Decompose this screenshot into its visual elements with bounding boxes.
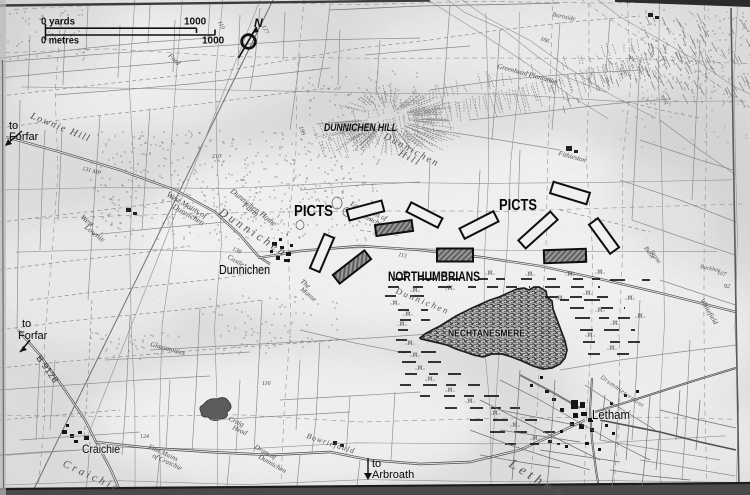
svg-text:92: 92	[724, 284, 730, 290]
svg-text:122: 122	[540, 330, 549, 336]
svg-text:to: to	[22, 318, 31, 330]
svg-text:1000: 1000	[184, 17, 207, 28]
svg-text:Craichie: Craichie	[82, 442, 120, 456]
svg-text:PICTS: PICTS	[499, 197, 537, 214]
svg-text:Dunnichen: Dunnichen	[219, 263, 270, 277]
svg-text:116: 116	[262, 381, 271, 387]
svg-text:124: 124	[140, 433, 149, 440]
svg-text:NECHTANESMERE: NECHTANESMERE	[448, 329, 525, 340]
svg-text:NORTHUMBRIANS: NORTHUMBRIANS	[388, 268, 480, 284]
svg-text:Letham: Letham	[592, 408, 630, 422]
svg-text:210: 210	[212, 154, 221, 160]
svg-text:PICTS: PICTS	[294, 203, 333, 220]
svg-text:Arbroath: Arbroath	[372, 469, 414, 481]
svg-text:1000: 1000	[202, 36, 225, 47]
svg-text:0 yards: 0 yards	[41, 17, 75, 28]
svg-text:Forfar: Forfar	[18, 330, 48, 342]
svg-text:Forfar: Forfar	[9, 131, 39, 143]
svg-text:0 metres: 0 metres	[41, 36, 79, 47]
